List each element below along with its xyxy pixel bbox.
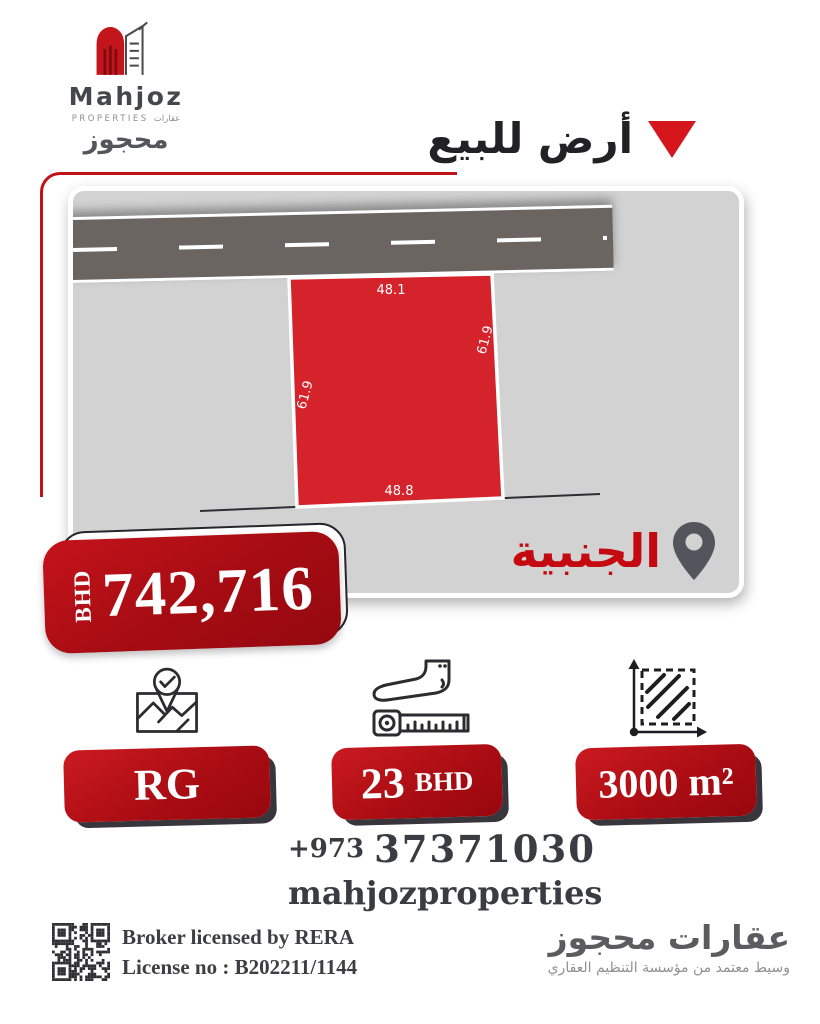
- classification-value: RG: [133, 758, 200, 811]
- mahjoz-logo-icon: [80, 20, 172, 80]
- area-value: 3000 m²: [598, 757, 734, 808]
- flyer-page: Mahjoz PROPERTIES عقارات محجوز أرض للبيع…: [0, 0, 820, 1024]
- location-pin-icon: [671, 521, 717, 581]
- instagram-row: mahjozproperties: [278, 874, 578, 912]
- feature-price-per-foot: 23 BHD: [330, 656, 504, 818]
- price-currency: BHD: [69, 569, 97, 623]
- phone-country-code: +973: [288, 834, 364, 864]
- logo-subtitle-en: PROPERTIES: [72, 114, 149, 124]
- location-row: الجنبية: [511, 521, 717, 581]
- logo-subtitle: PROPERTIES عقارات: [38, 114, 214, 124]
- phone-row: @ +973 37371030: [278, 828, 578, 870]
- page-title: أرض للبيع: [427, 118, 696, 160]
- footer-brand: عقارات محجوز وسيط معتمد من مؤسسة التنظيم…: [548, 918, 790, 976]
- title-text: أرض للبيع: [427, 118, 633, 160]
- feature-classification: RG: [62, 658, 272, 820]
- foot-measure-icon: [362, 654, 472, 740]
- area-icon: [620, 654, 712, 740]
- qr-code: [52, 923, 110, 981]
- footer-license: Broker licensed by RERA License no : B20…: [52, 922, 357, 983]
- price-amount: 742,716: [101, 557, 315, 627]
- price-badge: BHD 742,716: [42, 531, 342, 654]
- map-check-icon: [129, 666, 205, 742]
- price-per-foot-unit: BHD: [414, 765, 473, 798]
- license-line-1: Broker licensed by RERA: [122, 922, 357, 952]
- instagram-handle: mahjozproperties: [288, 874, 602, 912]
- dimension-bottom: 48.8: [385, 484, 414, 499]
- logo-name: Mahjoz: [38, 82, 214, 111]
- location-name: الجنبية: [511, 528, 661, 574]
- dimension-top: 48.1: [377, 283, 406, 298]
- classification-badge: RG: [63, 745, 271, 822]
- triangle-marker-icon: [648, 121, 696, 158]
- phone-number: 37371030: [374, 831, 596, 868]
- logo-block: Mahjoz PROPERTIES عقارات محجوز: [38, 20, 214, 155]
- license-line-2: License no : B202211/1144: [122, 952, 357, 982]
- brand-tagline: وسيط معتمد من مؤسسة التنظيم العقاري: [548, 960, 790, 976]
- logo-subtitle-ar: عقارات: [154, 114, 180, 124]
- land-plot: [289, 274, 503, 507]
- brand-arabic: عقارات محجوز: [548, 918, 790, 958]
- price-per-foot-value: 23: [360, 757, 405, 809]
- feature-area: 3000 m²: [574, 656, 758, 818]
- logo-arabic-name: محجوز: [38, 125, 214, 155]
- price-per-foot-badge: 23 BHD: [331, 744, 503, 820]
- area-badge: 3000 m²: [575, 744, 757, 821]
- contact-block: @ +973 37371030 mahjozproperties: [278, 828, 578, 912]
